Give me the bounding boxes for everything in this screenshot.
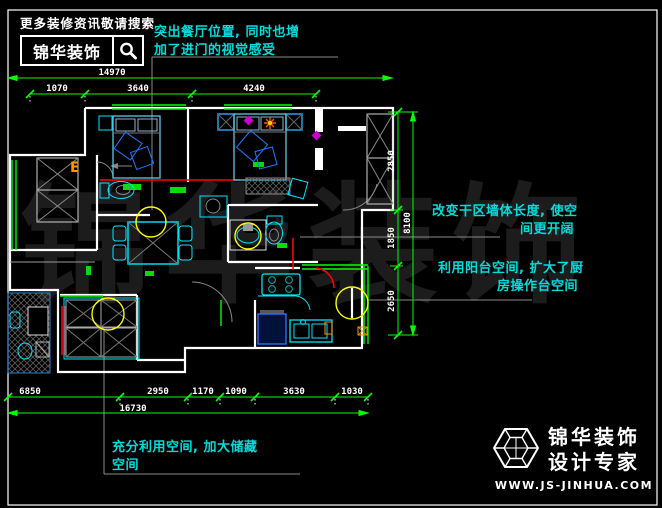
svg-text:1850: 1850 (387, 227, 397, 249)
footer-brand-line1: 锦华装饰 (548, 425, 640, 450)
footer-brand-text: 锦华装饰 设计专家 (548, 425, 640, 475)
svg-text:4240: 4240 (243, 84, 265, 94)
annotation-line: 充分利用空间, 加大储藏 (112, 439, 257, 457)
annotation-dry-area: 改变干区墙体长度, 使空 间更开阔 (432, 203, 574, 239)
search-box: 锦华装饰 (20, 35, 144, 66)
dimensions: 14970 1070 3640 4240 6850 2950 1170 1090… (4, 68, 418, 416)
svg-text:14970: 14970 (98, 68, 125, 78)
footer-brand-line2: 设计专家 (548, 450, 640, 475)
cad-symbols: E (70, 116, 321, 176)
walls (10, 108, 393, 372)
svg-text:2850: 2850 (387, 150, 397, 172)
flower-mark-icon (264, 117, 276, 129)
svg-text:1030: 1030 (341, 387, 363, 397)
annotation-storage: 充分利用空间, 加大储藏 空间 (112, 439, 257, 475)
magenta-diamond-icon (312, 131, 322, 141)
annotation-line: 间更开阔 (432, 221, 574, 239)
cad-floorplan-screenshot: 锦华装饰 (0, 0, 662, 508)
annotation-line: 利用阳台空间, 扩大了厨 (438, 260, 578, 278)
footer-website: WWW.JS-JINHUA.COM (492, 479, 656, 492)
annotation-line: 突出餐厅位置, 同时也增 (154, 24, 299, 42)
svg-text:1170: 1170 (192, 387, 214, 397)
electric-panel-mark: E (70, 160, 80, 176)
svg-text:8100: 8100 (403, 212, 413, 234)
svg-text:16730: 16730 (119, 404, 146, 414)
annotation-line: 空间 (112, 457, 257, 475)
wall-piers (315, 108, 366, 170)
bedroom2-bed (218, 114, 308, 199)
annotation-balcony: 利用阳台空间, 扩大了厨 房操作台空间 (438, 260, 578, 296)
magnifier-icon (114, 41, 142, 61)
svg-text:3630: 3630 (283, 387, 305, 397)
brand-name: 锦华装饰 (22, 39, 112, 63)
header-tagline: 更多装修资讯敬请搜索 (20, 13, 144, 32)
door-arrow (110, 163, 118, 169)
entry-mat-area (8, 293, 50, 373)
bedroom1-bed (99, 116, 160, 178)
header-brand-block: 更多装修资讯敬请搜索 锦华装饰 (20, 13, 144, 66)
cube-wireframe-icon (492, 424, 540, 476)
annotation-line: 加了进门的视觉感受 (154, 42, 299, 60)
svg-text:2650: 2650 (387, 290, 397, 312)
svg-text:2950: 2950 (147, 387, 169, 397)
svg-text:1070: 1070 (46, 84, 68, 94)
annotation-dining: 突出餐厅位置, 同时也增 加了进门的视觉感受 (154, 24, 299, 60)
dining-table (113, 222, 192, 264)
svg-text:1090: 1090 (225, 387, 247, 397)
kitchen (258, 274, 367, 344)
svg-text:6850: 6850 (19, 387, 41, 397)
annotation-line: 改变干区墙体长度, 使空 (432, 203, 574, 221)
footer-brand-block: 锦华装饰 设计专家 WWW.JS-JINHUA.COM (492, 424, 656, 492)
annotation-line: 房操作台空间 (438, 278, 578, 296)
svg-text:3640: 3640 (127, 84, 149, 94)
